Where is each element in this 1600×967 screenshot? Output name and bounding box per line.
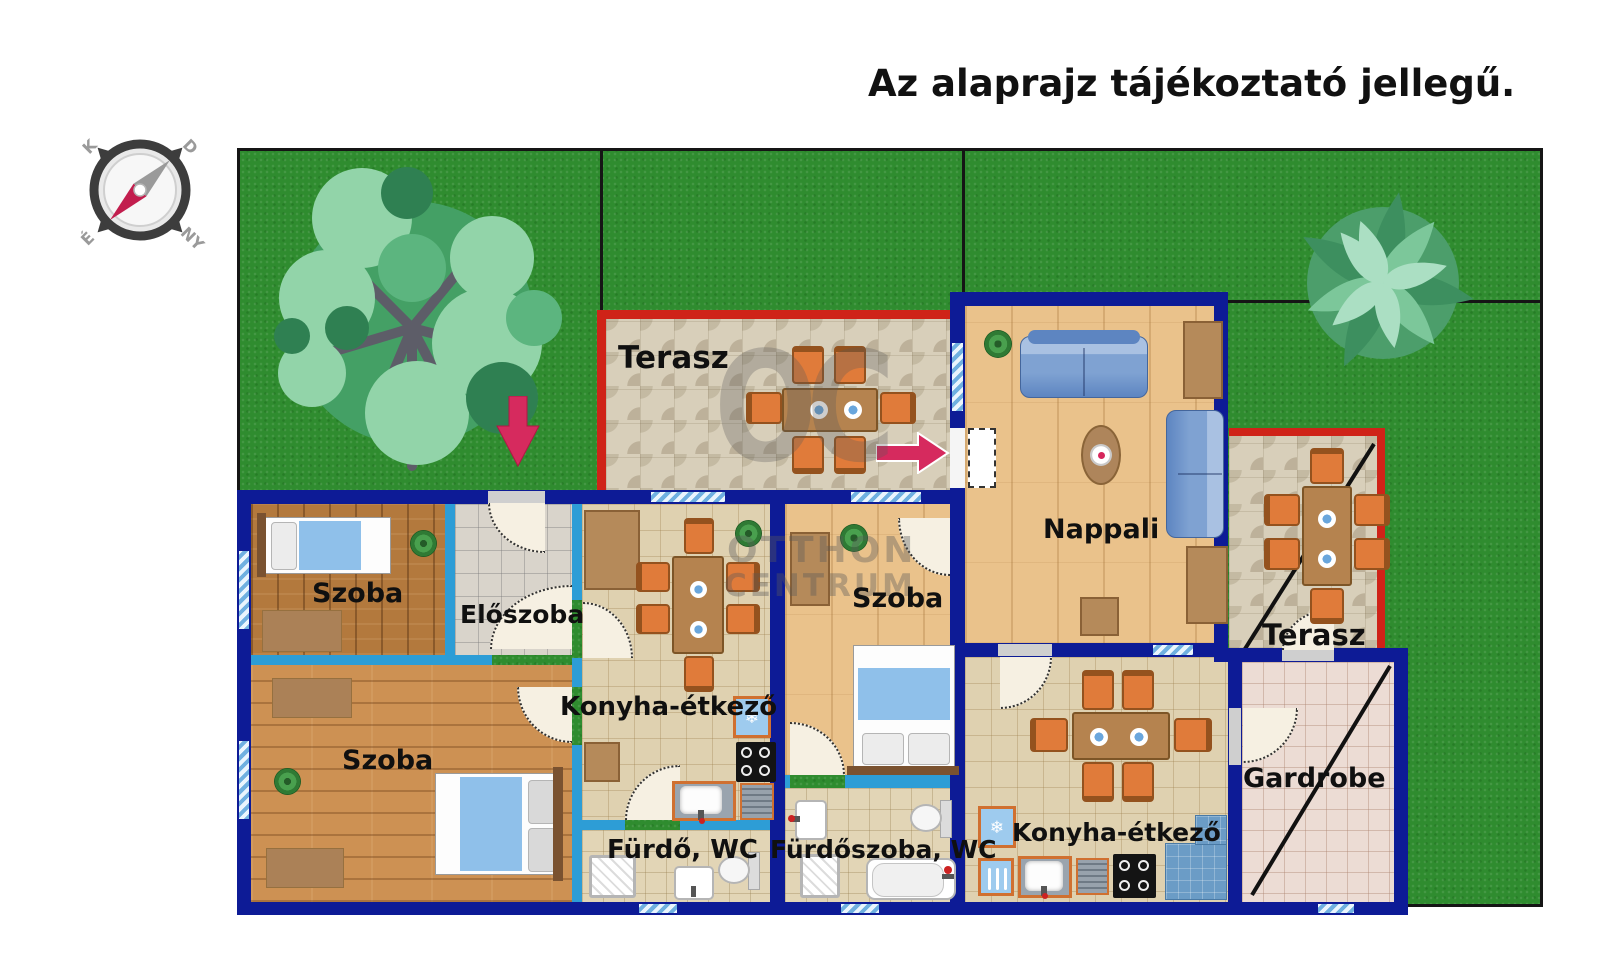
outer-wall <box>950 292 1228 306</box>
dishwasher-icon <box>740 783 774 820</box>
tap-icon <box>942 874 954 879</box>
plate-icon <box>1318 550 1336 568</box>
tap-handle <box>788 815 795 822</box>
window <box>1152 644 1194 656</box>
kitchen-cabinet <box>584 742 620 782</box>
cabinet <box>1183 321 1223 399</box>
label-nappali: Nappali <box>1043 514 1159 545</box>
label-szoba-big: Szoba <box>342 745 433 776</box>
kitchen-counter <box>584 510 640 590</box>
interior-wall <box>572 658 582 687</box>
tv-stand <box>1080 597 1119 636</box>
plate-icon <box>1090 728 1108 746</box>
bathtub-basin <box>872 863 944 897</box>
chair-icon <box>1310 448 1344 484</box>
chair-icon <box>1030 718 1068 752</box>
terrace2-border-top <box>1229 428 1385 436</box>
bed-pillow <box>271 522 297 570</box>
bed-headboard <box>553 767 563 881</box>
chair-icon <box>880 392 916 424</box>
label-eloszoba: Előszoba <box>460 600 584 629</box>
rug <box>266 848 344 888</box>
compass-label-ny: NY <box>177 223 208 254</box>
chair-icon <box>726 604 760 634</box>
tap-handle <box>944 866 952 874</box>
counter <box>1165 843 1227 900</box>
door-opening <box>950 428 965 488</box>
interior-wall <box>785 775 790 788</box>
window <box>951 342 964 412</box>
outer-wall <box>1394 648 1408 915</box>
terrace-border-top <box>597 310 950 319</box>
stove-icon <box>1113 854 1156 898</box>
outer-wall <box>237 902 1408 915</box>
rug <box>262 610 342 652</box>
chair-icon <box>1354 494 1390 526</box>
interior-wall <box>251 655 492 665</box>
bed-footboard <box>847 766 959 775</box>
label-szoba-mid: Szoba <box>852 583 943 614</box>
watermark-logo: OC <box>714 332 884 484</box>
plate-icon <box>1318 510 1336 528</box>
door-leaf <box>968 428 996 488</box>
terrace-table <box>1302 486 1352 586</box>
bed-pillow <box>862 733 904 765</box>
tap-handle <box>1042 893 1048 899</box>
chair-icon <box>1264 494 1300 526</box>
plant-icon <box>984 330 1012 358</box>
bed-headboard <box>257 513 266 577</box>
outer-wall <box>1228 662 1242 915</box>
chair-icon <box>636 562 670 592</box>
plant-icon <box>274 768 301 795</box>
window <box>638 903 678 914</box>
sofa-seam <box>1083 348 1085 396</box>
chair-icon <box>636 604 670 634</box>
chair-icon <box>1174 718 1212 752</box>
window <box>1317 903 1355 914</box>
interior-wall <box>582 820 625 830</box>
compass-icon: K D É NY <box>72 122 208 258</box>
entrance-arrow-down-icon <box>496 396 540 468</box>
chair-icon <box>1122 762 1154 802</box>
bed-blanket <box>858 668 950 720</box>
chair-icon <box>1082 670 1114 710</box>
stove-icon <box>736 742 776 782</box>
compass-label-k: K <box>79 135 102 158</box>
label-konyha-right: Konyha-étkező <box>1012 818 1221 847</box>
label-terasz-top: Terasz <box>618 340 729 376</box>
chair-icon <box>1264 538 1300 570</box>
door-sill <box>998 644 1052 656</box>
label-furdoszoba: Fürdőszoba, WC <box>770 835 997 864</box>
plot-boundary-line <box>600 148 603 311</box>
bed-pillow <box>528 828 556 872</box>
dining-table <box>1072 712 1170 760</box>
door-sill <box>488 491 545 503</box>
dining-table <box>672 556 724 654</box>
label-gardrobe: Gardrobe <box>1243 763 1386 794</box>
sofa-back <box>1028 330 1140 344</box>
compass-label-e: É <box>77 228 98 249</box>
interior-wall <box>572 504 582 600</box>
window <box>238 550 250 630</box>
chair-icon <box>684 518 714 554</box>
tap-handle <box>699 818 705 824</box>
tap-icon <box>691 886 696 897</box>
chair-icon <box>1122 670 1154 710</box>
interior-wall <box>572 745 582 902</box>
plate-icon <box>690 581 707 598</box>
bed-blanket <box>299 521 361 570</box>
bush-icon <box>1268 168 1498 398</box>
interior-wall <box>680 820 770 830</box>
floor-plan-image: Az alaprajz tájékoztató jellegű. K D É N… <box>0 0 1600 967</box>
plant-icon <box>410 530 437 557</box>
interior-wall <box>445 504 455 655</box>
disclaimer-title: Az alaprajz tájékoztató jellegű. <box>868 62 1515 105</box>
flower-icon <box>1098 452 1105 459</box>
door-sill <box>1229 708 1241 765</box>
bed-blanket <box>460 777 522 871</box>
chair-icon <box>1354 538 1390 570</box>
label-konyha-left: Konyha-étkező <box>560 692 777 722</box>
window <box>238 740 250 820</box>
window <box>840 903 880 914</box>
watermark-text: OTTHON <box>727 530 916 571</box>
entrance-arrow-right-icon <box>876 432 950 474</box>
chair-icon <box>1082 762 1114 802</box>
plate-icon <box>1130 728 1148 746</box>
chair-icon <box>684 656 714 692</box>
compass-label-d: D <box>179 135 202 158</box>
toilet-icon <box>910 804 942 832</box>
sofa-seam <box>1178 473 1222 475</box>
label-furdo: Fürdő, WC <box>607 835 758 865</box>
bed-pillow <box>908 733 950 765</box>
label-terasz-right: Terasz <box>1262 618 1366 652</box>
bed-pillow <box>528 780 556 824</box>
cabinet <box>1186 546 1228 624</box>
interior-wall <box>845 775 950 788</box>
dishwasher-icon <box>1076 858 1109 895</box>
rug <box>272 678 352 718</box>
label-szoba-small: Szoba <box>312 578 403 609</box>
terrace-border-left <box>597 310 606 492</box>
plot-boundary-line <box>962 148 965 300</box>
plate-icon <box>690 621 707 638</box>
